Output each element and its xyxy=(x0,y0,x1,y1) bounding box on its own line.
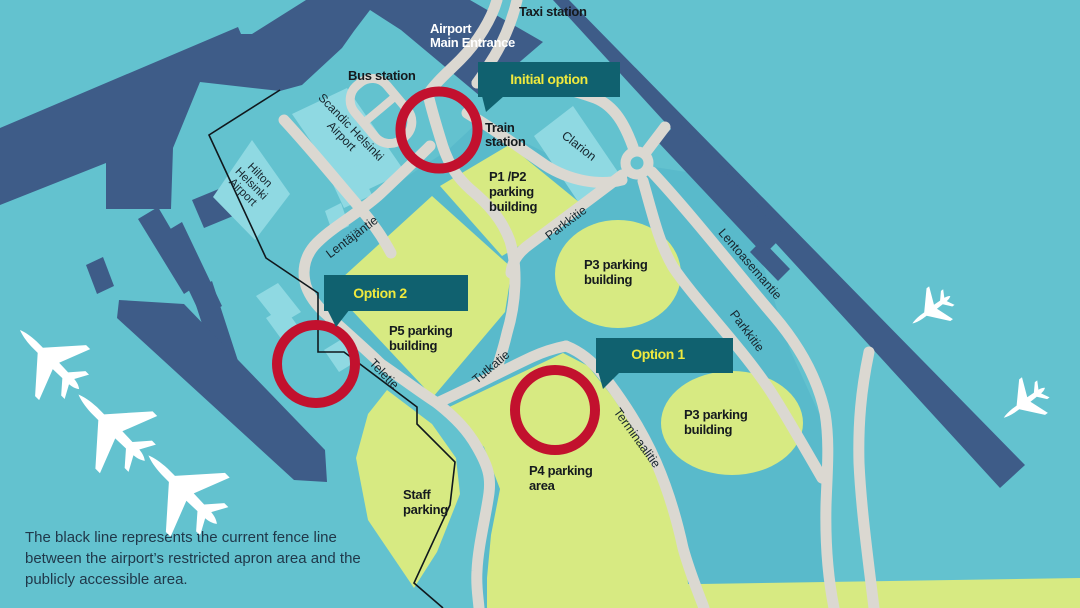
svg-text:Option 1: Option 1 xyxy=(631,346,685,362)
svg-text:between the airport’s restrict: between the airport’s restricted apron a… xyxy=(25,550,361,567)
svg-text:parking: parking xyxy=(489,184,534,199)
svg-text:Bus station: Bus station xyxy=(348,68,416,83)
svg-text:Initial option: Initial option xyxy=(510,71,588,87)
svg-text:building: building xyxy=(489,199,537,214)
svg-text:building: building xyxy=(584,272,632,287)
svg-text:area: area xyxy=(529,478,556,493)
svg-text:Taxi station: Taxi station xyxy=(519,4,587,19)
svg-text:building: building xyxy=(684,422,732,437)
svg-text:Option 2: Option 2 xyxy=(353,285,407,301)
svg-text:The black line represents the: The black line represents the current fe… xyxy=(25,529,337,546)
svg-text:Staff: Staff xyxy=(403,487,431,502)
svg-text:Airport: Airport xyxy=(430,21,472,36)
svg-text:P4 parking: P4 parking xyxy=(529,463,593,478)
svg-text:P3 parking: P3 parking xyxy=(584,257,648,272)
svg-text:station: station xyxy=(485,134,526,149)
svg-text:P5 parking: P5 parking xyxy=(389,323,453,338)
svg-text:building: building xyxy=(389,338,437,353)
svg-text:P3 parking: P3 parking xyxy=(684,407,748,422)
svg-text:Train: Train xyxy=(485,120,515,135)
svg-text:publicly accessible area.: publicly accessible area. xyxy=(25,571,188,588)
svg-text:Main Entrance: Main Entrance xyxy=(430,35,515,50)
svg-text:parking: parking xyxy=(403,502,448,517)
svg-text:P1 /P2: P1 /P2 xyxy=(489,169,526,184)
